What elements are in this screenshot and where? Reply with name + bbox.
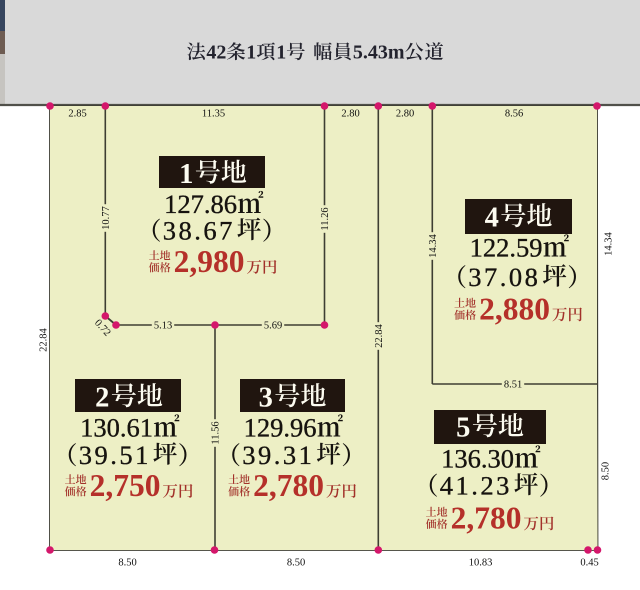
svg-text:2,780: 2,780: [451, 501, 522, 536]
svg-text:2.80: 2.80: [341, 109, 359, 120]
svg-text:22.84: 22.84: [39, 327, 50, 351]
svg-text:1: 1: [246, 42, 256, 64]
svg-text:8.56: 8.56: [505, 109, 523, 120]
svg-text:130.61: 130.61: [80, 413, 153, 443]
svg-text:14.34: 14.34: [604, 231, 615, 255]
svg-text:127.86: 127.86: [164, 189, 237, 219]
svg-text:4: 4: [485, 203, 499, 234]
svg-text:3: 3: [259, 383, 273, 414]
svg-text:1: 1: [276, 42, 286, 64]
svg-text:41.23: 41.23: [440, 471, 512, 501]
svg-text:0.45: 0.45: [580, 558, 598, 569]
svg-text:8.50: 8.50: [601, 462, 612, 480]
svg-text:5.69: 5.69: [264, 321, 282, 332]
svg-text:2.80: 2.80: [396, 109, 414, 120]
svg-text:2,750: 2,750: [90, 468, 161, 503]
svg-text:129.96: 129.96: [244, 413, 317, 443]
svg-text:38.67: 38.67: [163, 216, 235, 246]
svg-text:39.51: 39.51: [79, 440, 151, 470]
svg-text:5.13: 5.13: [154, 321, 172, 332]
svg-text:122.59: 122.59: [470, 233, 543, 263]
svg-text:10.77: 10.77: [101, 206, 112, 230]
svg-text:8.50: 8.50: [118, 558, 136, 569]
svg-text:37.08: 37.08: [468, 262, 540, 292]
svg-text:5.43m: 5.43m: [353, 42, 405, 64]
svg-text:11.56: 11.56: [211, 421, 222, 444]
svg-text:11.26: 11.26: [320, 207, 331, 230]
svg-text:8.50: 8.50: [287, 558, 305, 569]
svg-text:2,780: 2,780: [253, 468, 324, 503]
svg-text:136.30: 136.30: [441, 444, 514, 474]
svg-text:1: 1: [179, 159, 193, 190]
svg-text:2,880: 2,880: [479, 292, 550, 327]
svg-text:22.84: 22.84: [374, 323, 385, 347]
svg-text:5: 5: [456, 413, 470, 444]
svg-text:8.51: 8.51: [504, 380, 522, 391]
svg-text:2: 2: [95, 383, 109, 414]
svg-text:14.34: 14.34: [428, 233, 439, 257]
svg-text:39.31: 39.31: [242, 440, 314, 470]
svg-text:42: 42: [206, 42, 226, 64]
svg-text:11.35: 11.35: [202, 109, 225, 120]
svg-text:2,980: 2,980: [174, 244, 245, 279]
svg-text:10.83: 10.83: [469, 558, 493, 569]
svg-text:2.85: 2.85: [68, 109, 86, 120]
